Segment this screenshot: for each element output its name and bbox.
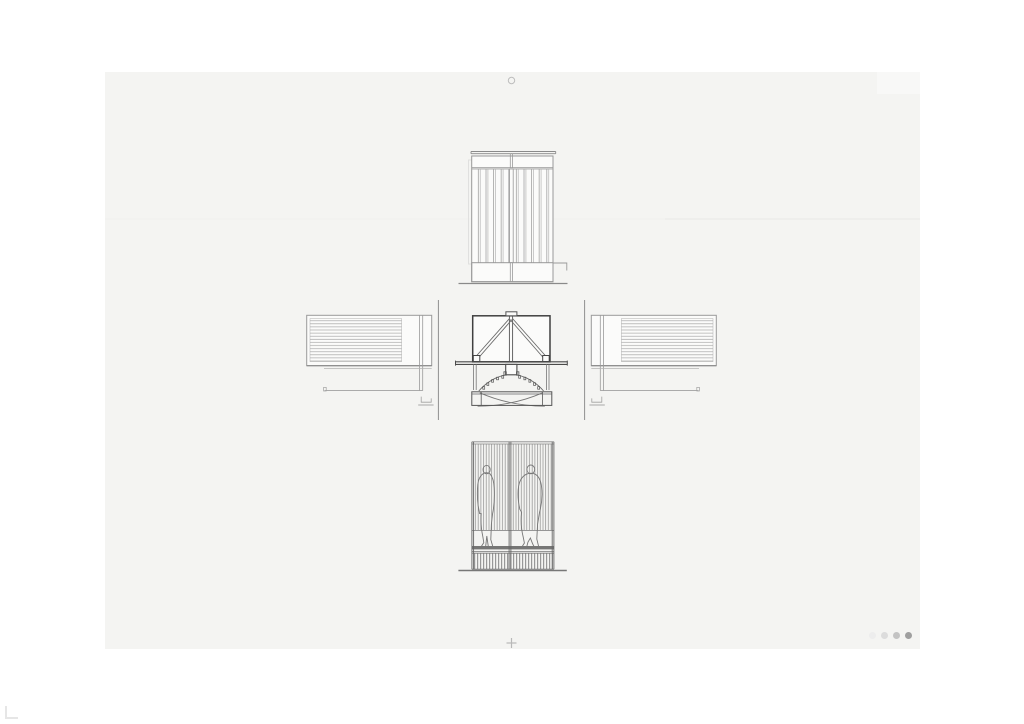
sheet-light-strip bbox=[877, 72, 920, 94]
drawing-right-elevation bbox=[585, 300, 717, 420]
drawing-sheet bbox=[105, 72, 920, 649]
pagination-dot[interactable] bbox=[893, 632, 900, 639]
pagination bbox=[869, 632, 912, 639]
drawing-top-elevation bbox=[459, 152, 568, 284]
drawing-left-elevation bbox=[307, 300, 439, 420]
registration-circle-icon bbox=[508, 77, 514, 83]
corner-crop-icon bbox=[5, 706, 18, 719]
crop-cross-icon bbox=[507, 638, 517, 648]
drawing-center-section bbox=[456, 312, 568, 406]
pagination-dot[interactable] bbox=[881, 632, 888, 639]
pagination-dot[interactable] bbox=[905, 632, 912, 639]
architectural-drawing bbox=[105, 72, 920, 649]
viewer-canvas bbox=[0, 0, 1024, 724]
drawing-bottom-elevation bbox=[458, 442, 566, 571]
pagination-dot[interactable] bbox=[869, 632, 876, 639]
